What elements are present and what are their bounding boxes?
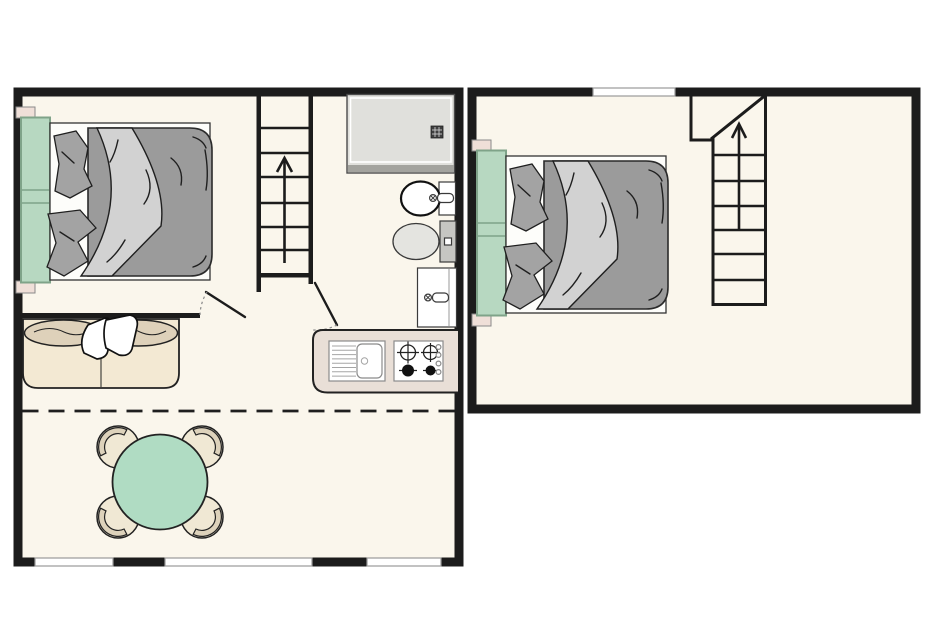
kitchen xyxy=(313,330,458,393)
vanity-unit xyxy=(418,268,457,327)
double-bed xyxy=(472,140,668,326)
toilet xyxy=(393,221,456,262)
throw-pillow xyxy=(104,315,137,355)
upper-floor-plan xyxy=(472,88,916,409)
gas-hob xyxy=(394,341,443,381)
washbasin xyxy=(401,182,456,216)
bedroom-wall xyxy=(22,313,200,318)
main-floor-plan xyxy=(16,92,459,566)
window xyxy=(165,558,312,566)
window xyxy=(367,558,441,566)
dining-table xyxy=(113,435,208,530)
double-bed xyxy=(16,107,212,293)
shower-tray xyxy=(347,95,455,174)
window xyxy=(593,88,675,96)
shower-drain-icon xyxy=(431,126,443,138)
faucet-icon xyxy=(430,194,454,203)
window xyxy=(35,558,113,566)
floor-plan-canvas xyxy=(0,0,930,630)
kitchen-sink xyxy=(329,341,385,381)
faucet-icon xyxy=(425,293,449,302)
floor-plan-page xyxy=(0,0,930,630)
sofa xyxy=(23,315,179,388)
